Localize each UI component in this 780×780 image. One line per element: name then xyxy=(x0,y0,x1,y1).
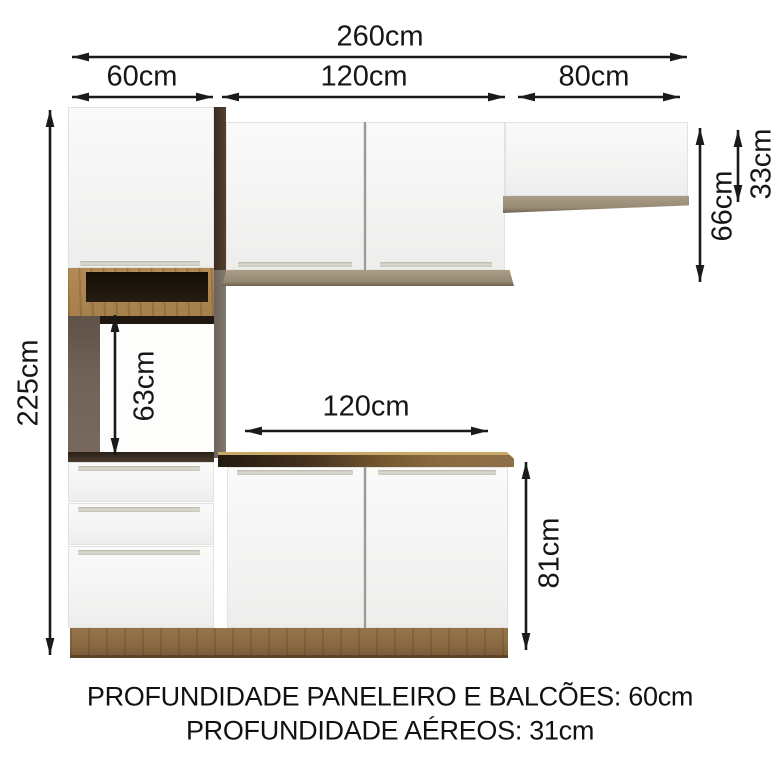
pantry-upper-door-handle xyxy=(80,261,200,266)
dim-label-total-width: 260cm xyxy=(336,23,423,52)
wall-cabinet-right-door xyxy=(366,122,505,270)
dim-label-counter-height: 81cm xyxy=(536,518,565,589)
pantry-lower-door xyxy=(68,546,214,628)
dim-label-pantry-width: 60cm xyxy=(107,63,178,92)
right-cabinet-bottom-trim xyxy=(503,196,689,213)
pantry-upper-door xyxy=(68,107,214,268)
counter-left-handle xyxy=(237,470,353,475)
wall-cabinet-door-gap xyxy=(364,122,366,270)
pantry-drawer-2-handle xyxy=(78,507,200,512)
counter-right-handle xyxy=(378,470,496,475)
pantry-niche-interior xyxy=(86,272,208,302)
pantry-lower-door-handle xyxy=(78,550,200,555)
counter-right-door xyxy=(366,467,508,628)
wall-cabinet-bottom-trim xyxy=(222,270,514,286)
oven-cavity-left-side xyxy=(68,316,100,456)
dim-label-right-width: 80cm xyxy=(559,63,630,92)
countertop xyxy=(218,452,514,467)
dim-label-wall-height: 66cm xyxy=(709,171,738,242)
footer-depth-pantry-counters: PROFUNDIDADE PANELEIRO E BALCÕES: 60cm xyxy=(87,682,693,713)
wall-cabinet-right-handle xyxy=(380,262,492,267)
counter-door-gap xyxy=(364,467,366,628)
dim-label-right-height: 33cm xyxy=(748,129,777,200)
base-plinth xyxy=(70,628,508,658)
wall-cabinet-left-handle xyxy=(238,262,352,267)
pantry-side-panel-lower xyxy=(214,270,226,458)
dim-label-total-height: 225cm xyxy=(15,339,44,426)
footer-depth-wall-cabinets: PROFUNDIDADE AÉREOS: 31cm xyxy=(186,716,594,747)
kitchen-cabinet-diagram: 260cm 60cm 120cm 80cm 120cm 225cm 63cm 6… xyxy=(0,0,780,780)
pantry-drawer-1-handle xyxy=(78,466,200,471)
dim-label-niche-height: 63cm xyxy=(131,351,160,422)
wall-cabinet-left-door xyxy=(226,122,364,270)
oven-cavity-top-edge xyxy=(100,316,214,324)
oven-cavity-bottom-shelf xyxy=(68,452,214,462)
pantry-side-panel-upper xyxy=(214,107,226,270)
dim-label-wall-width: 120cm xyxy=(320,63,407,92)
counter-left-door xyxy=(227,467,364,628)
right-cabinet-door xyxy=(505,122,688,196)
dim-label-counter-width: 120cm xyxy=(322,393,409,422)
